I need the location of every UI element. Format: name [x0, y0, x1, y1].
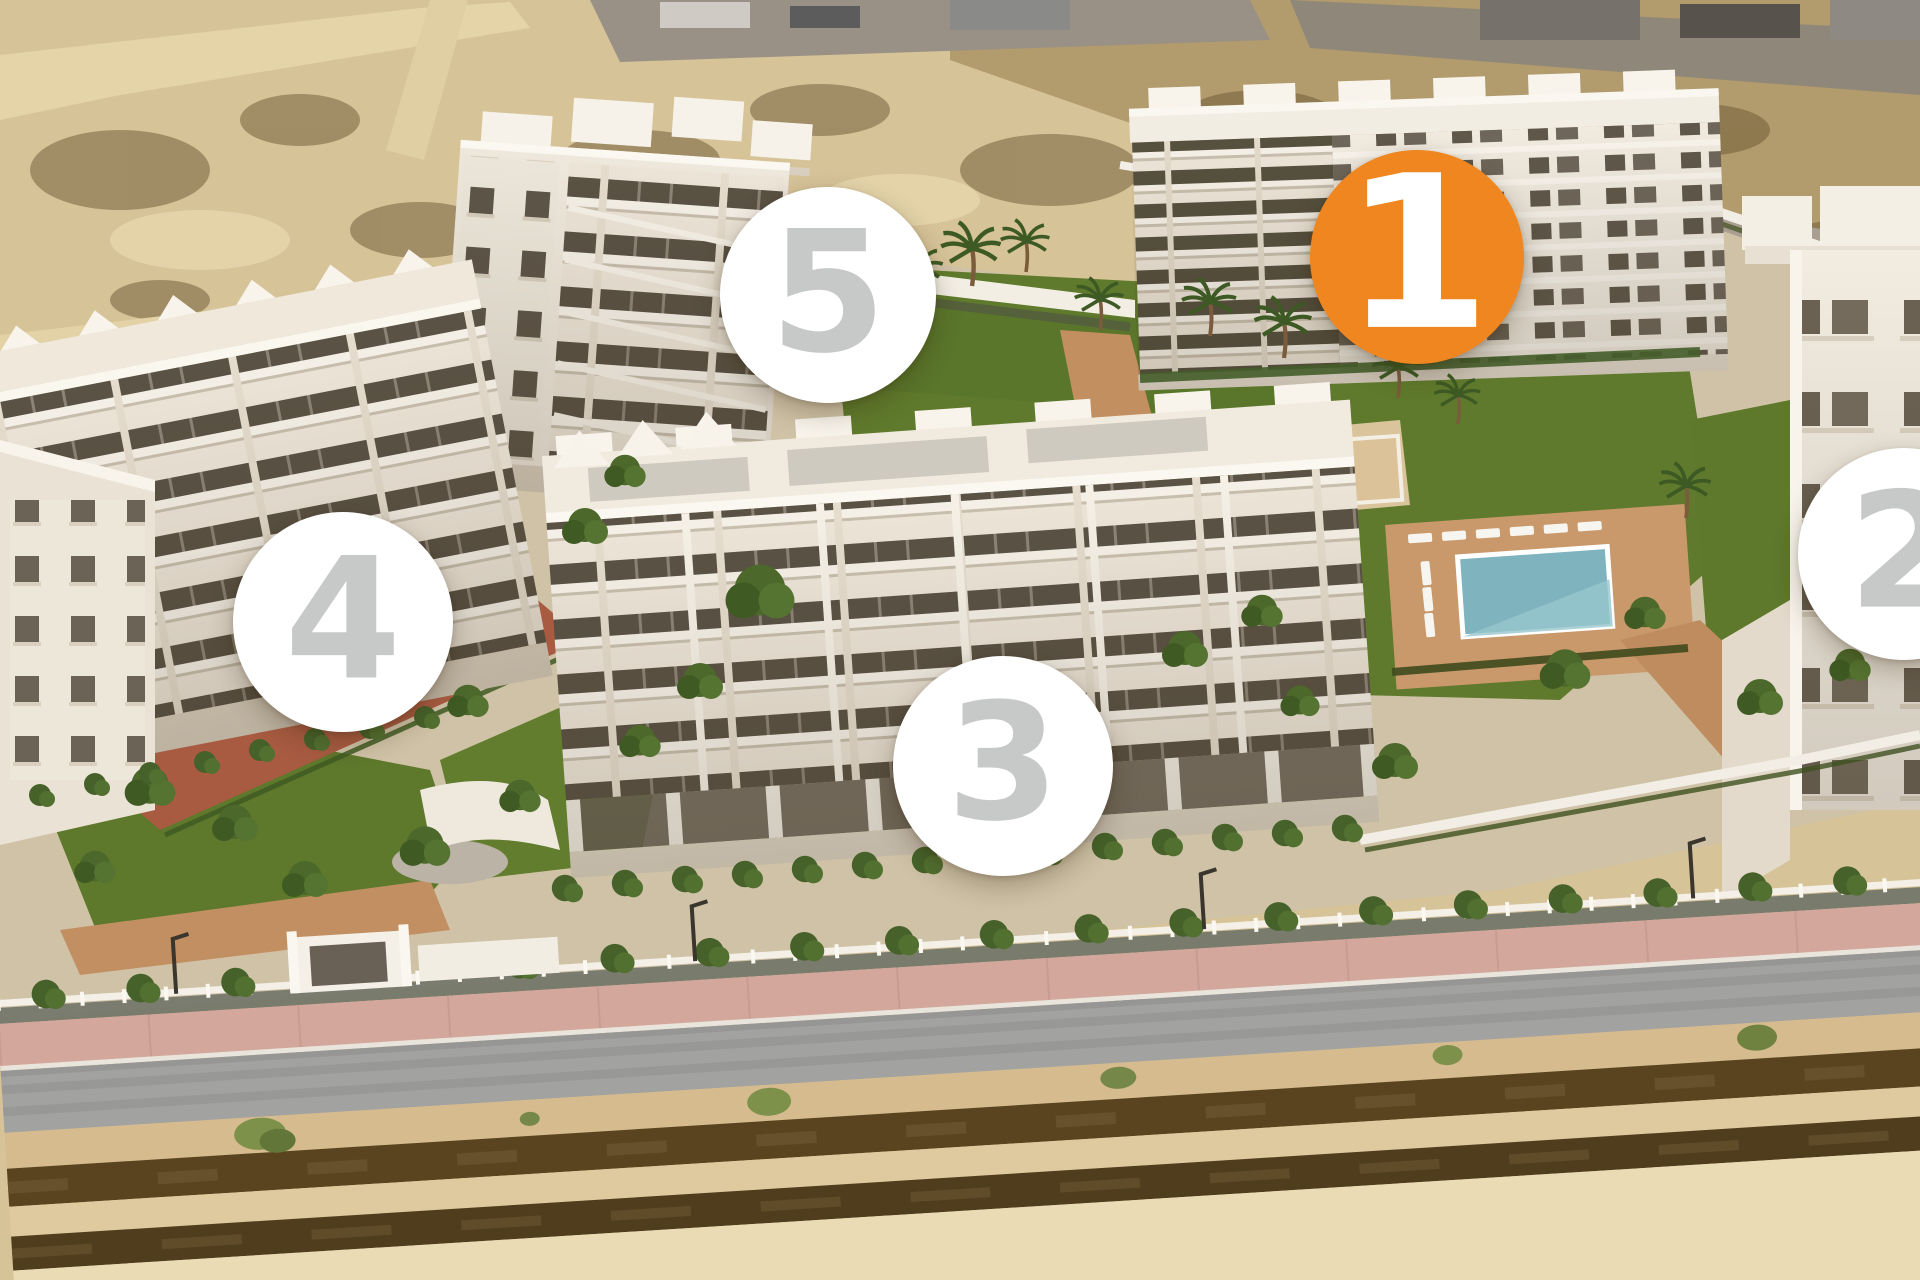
phase-marker-5[interactable]: 5 [720, 187, 936, 403]
phase-marker-4[interactable]: 4 [233, 512, 453, 732]
phase-marker-4-label: 4 [285, 535, 402, 703]
phase-marker-2-label: 2 [1848, 472, 1920, 632]
phase-marker-5-label: 5 [770, 208, 887, 376]
phase-marker-1[interactable]: 1 [1310, 150, 1524, 364]
phase-marker-3-label: 3 [947, 683, 1060, 845]
phase-marker-1-label: 1 [1343, 148, 1491, 360]
phase-marker-3[interactable]: 3 [893, 656, 1113, 876]
site-plan: 1 2 3 4 5 [0, 0, 1920, 1280]
